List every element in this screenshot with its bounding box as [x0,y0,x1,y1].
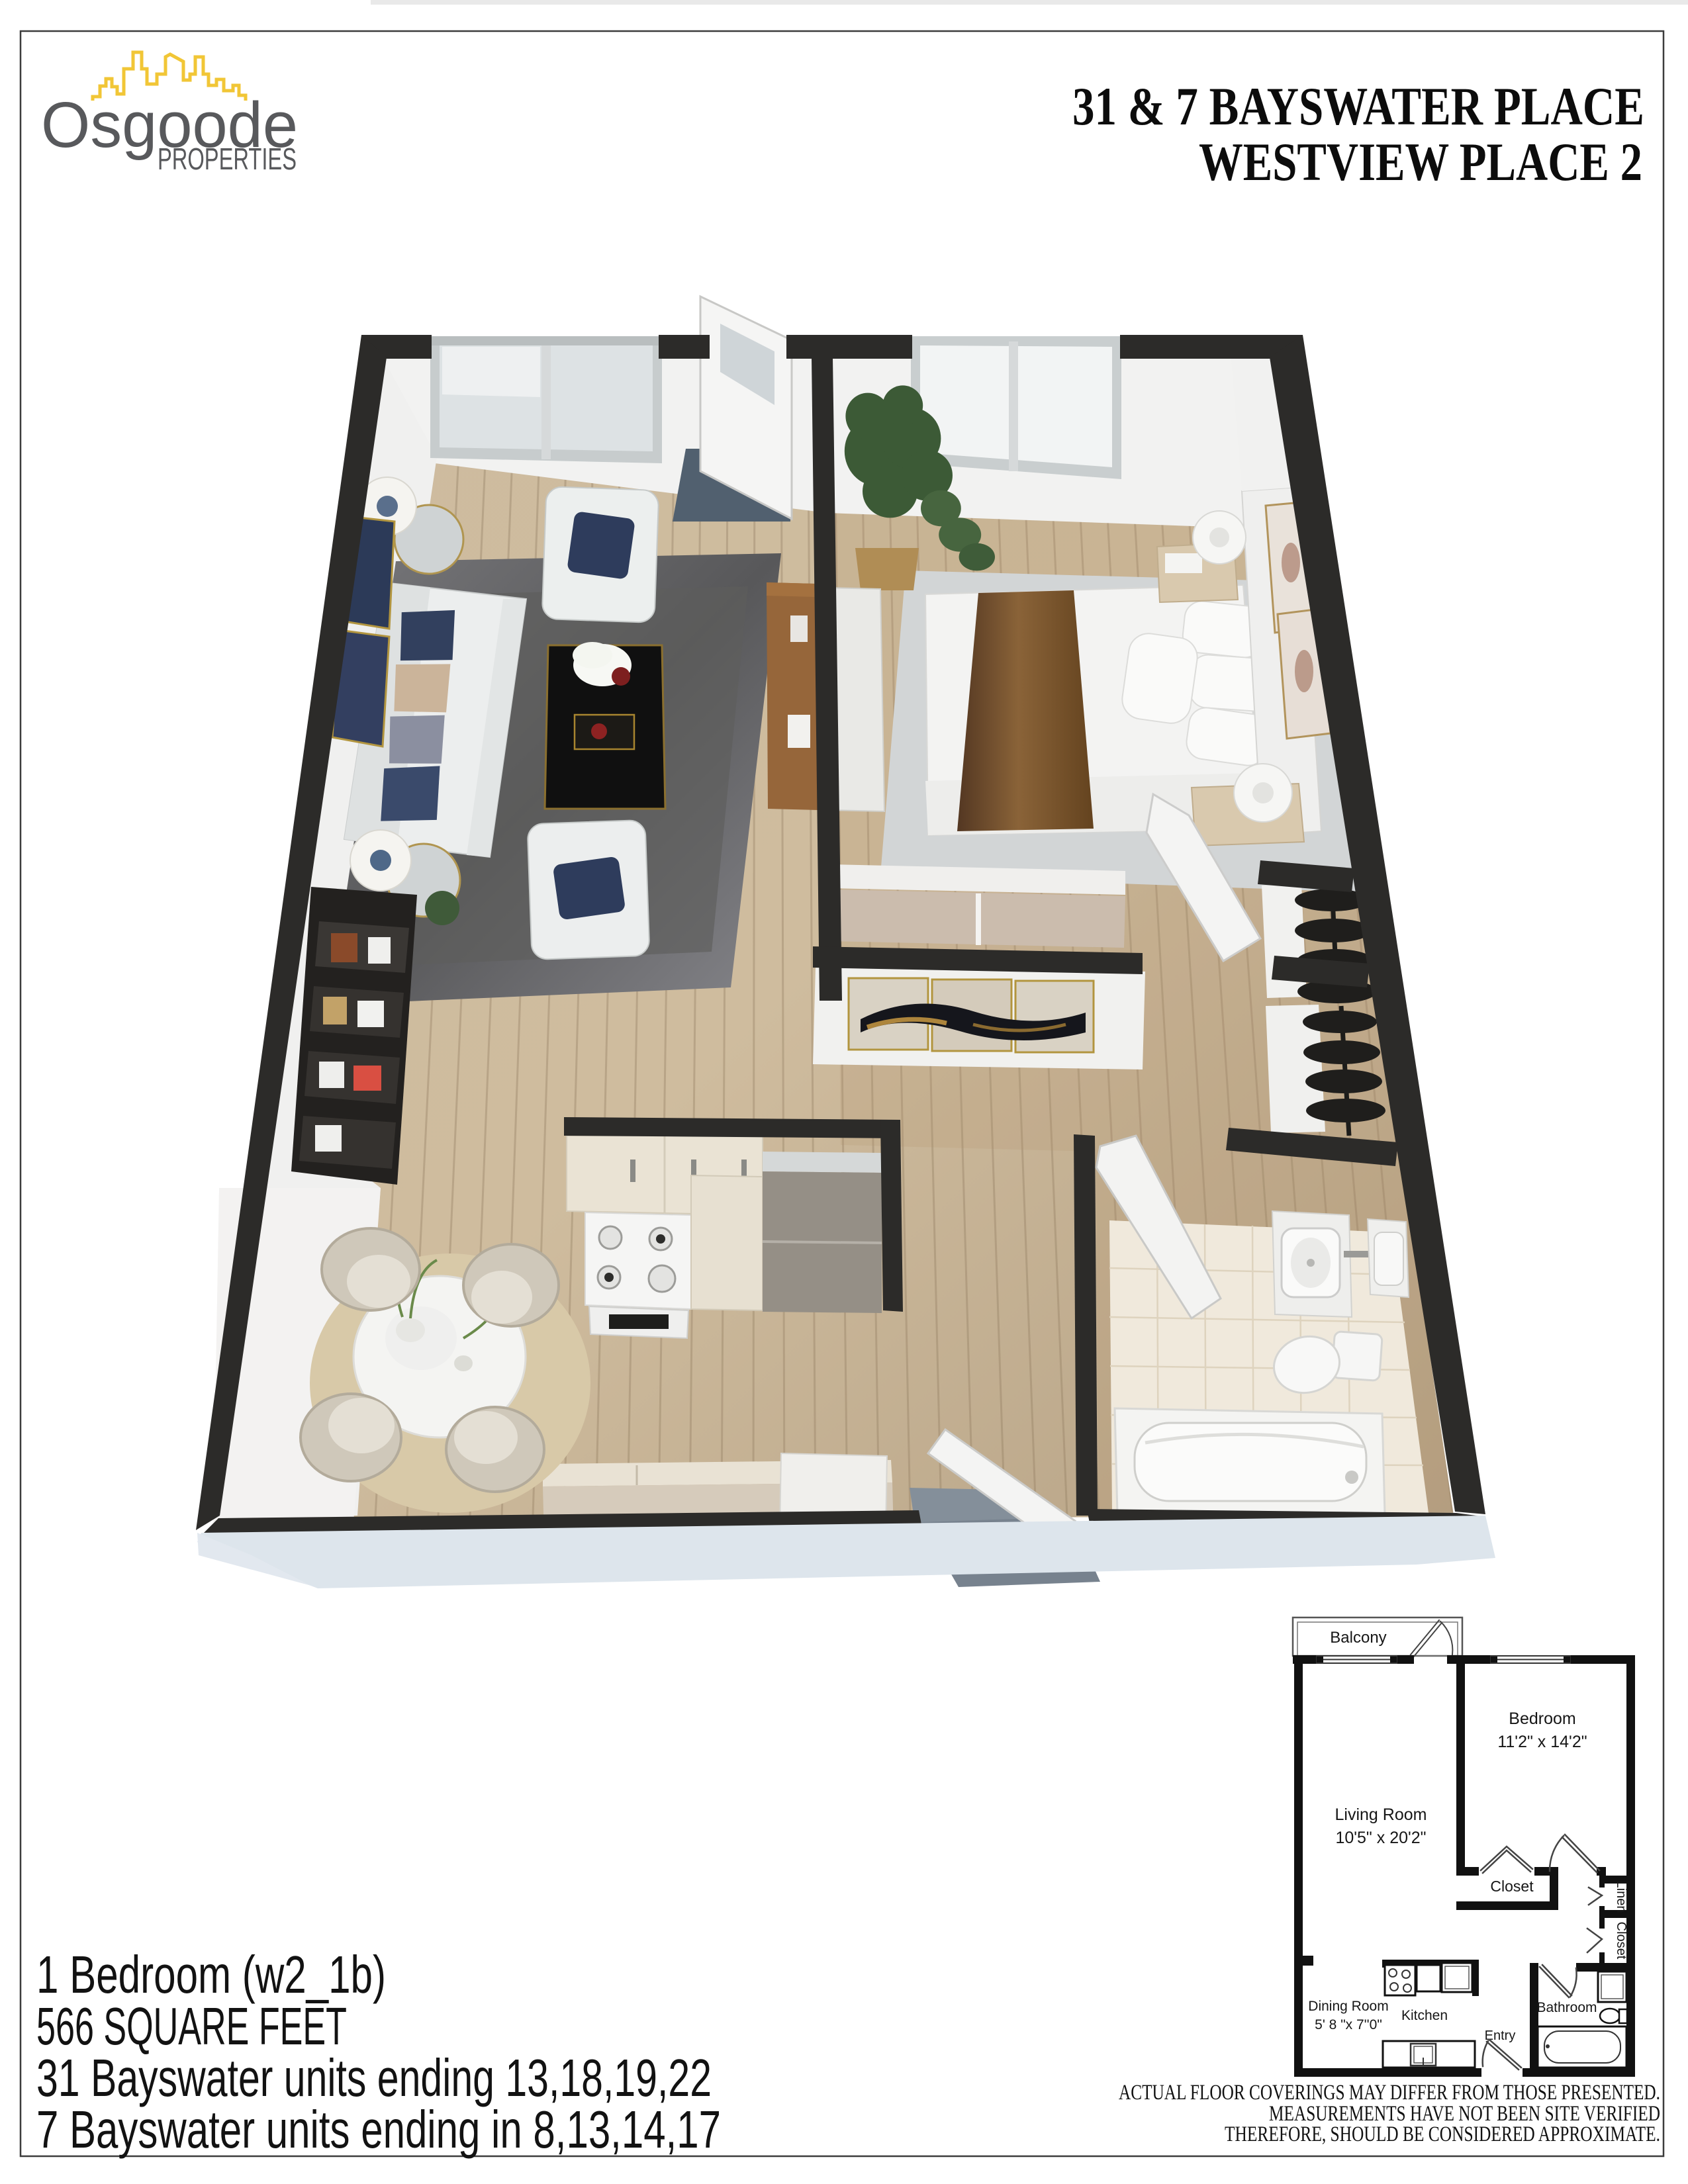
svg-text:Entry: Entry [1485,2028,1516,2043]
svg-text:PROPERTIES: PROPERTIES [158,142,297,176]
svg-text:11'2" x 14'2": 11'2" x 14'2" [1497,1733,1587,1751]
svg-text:1 Bedroom (w2_1b): 1 Bedroom (w2_1b) [36,1945,386,2004]
svg-text:566 SQUARE FEET: 566 SQUARE FEET [36,1997,347,2056]
svg-text:Kitchen: Kitchen [1401,2008,1448,2023]
svg-text:Closet: Closet [1490,1878,1534,1895]
svg-text:Closet: Closet [1614,1922,1628,1960]
svg-text:Living Room: Living Room [1335,1805,1427,1824]
svg-text:7 Bayswater units ending in 8: 7 Bayswater units ending in 8,13,14,17 [36,2100,721,2159]
svg-text:31 Bayswater units ending 13,1: 31 Bayswater units ending 13,18,19,22 [36,2048,712,2107]
svg-text:10'5" x 20'2": 10'5" x 20'2" [1335,1829,1426,1847]
svg-text:Bathroom: Bathroom [1536,2000,1597,2015]
svg-text:Linen: Linen [1614,1881,1628,1913]
svg-text:THEREFORE, SHOULD BE CONSIDERE: THEREFORE, SHOULD BE CONSIDERED APPROXIM… [1225,2122,1660,2146]
svg-text:5' 8 "x 7''0": 5' 8 "x 7''0" [1315,2017,1382,2032]
svg-text:Balcony: Balcony [1330,1629,1386,1647]
svg-text:31 & 7 BAYSWATER PLACE: 31 & 7 BAYSWATER PLACE [1072,76,1644,136]
svg-text:Bedroom: Bedroom [1509,1709,1575,1728]
svg-text:WESTVIEW PLACE 2: WESTVIEW PLACE 2 [1199,132,1642,192]
svg-text:Dining Room: Dining Room [1308,1999,1388,2014]
svg-text:ACTUAL FLOOR COVERINGS MAY DIF: ACTUAL FLOOR COVERINGS MAY DIFFER FROM T… [1119,2081,1660,2105]
